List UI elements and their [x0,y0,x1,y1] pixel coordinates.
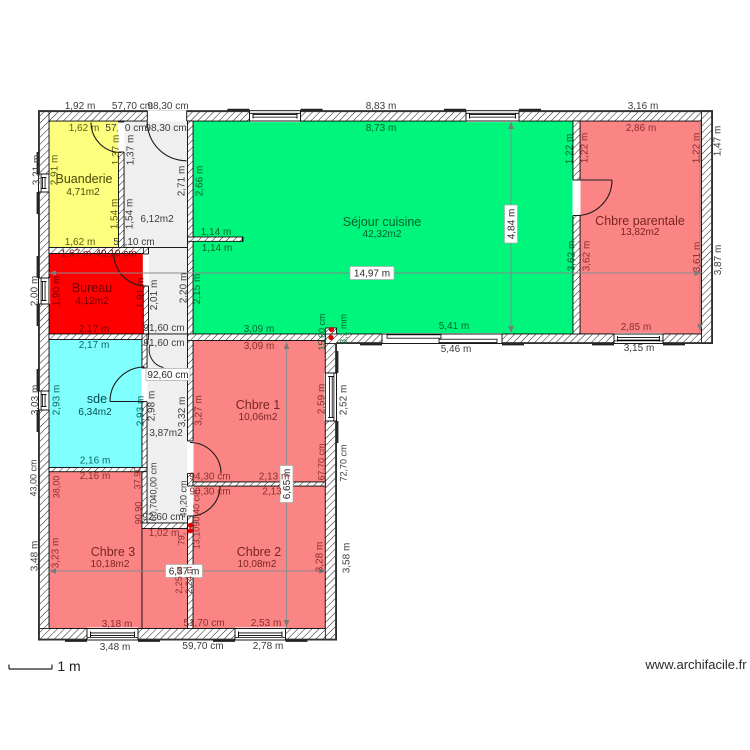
svg-text:49,10 cm: 49,10 cm [95,249,136,260]
svg-text:2,71 m: 2,71 m [177,166,188,197]
svg-text:40,00 cm: 40,00 cm [149,462,159,499]
svg-text:2,91 m: 2,91 m [50,155,61,186]
svg-text:3,23 m: 3,23 m [51,538,62,569]
svg-text:3,09 m: 3,09 m [244,324,275,335]
svg-text:4,84 m: 4,84 m [507,209,518,240]
svg-text:2,53 m: 2,53 m [251,618,282,629]
svg-text:2,20 m: 2,20 m [179,273,190,304]
svg-text:1,37 m: 1,37 m [111,135,122,166]
svg-text:2,13 m: 2,13 m [259,472,290,483]
svg-text:1,62 m: 1,62 m [69,123,100,134]
svg-text:2,17 m: 2,17 m [79,340,110,351]
svg-text:98,30 cm: 98,30 cm [147,101,188,112]
svg-text:3,16 m: 3,16 m [628,101,659,112]
svg-text:2,59 m: 2,59 m [317,384,328,415]
svg-text:2,86 m: 2,86 m [626,123,657,134]
svg-text:59,70 cm: 59,70 cm [182,641,223,652]
svg-text:1,91 m: 1,91 m [136,278,147,309]
svg-text:94,30 cm: 94,30 cm [189,472,230,483]
svg-text:2,52 m: 2,52 m [339,385,350,416]
svg-text:2,25 m: 2,25 m [174,566,184,594]
svg-text:2,66 m: 2,66 m [195,166,206,197]
svg-text:8,73 m: 8,73 m [366,123,397,134]
svg-text:2,16 m: 2,16 m [80,471,111,482]
svg-text:3,27 m: 3,27 m [194,395,205,426]
svg-text:3,28 m: 3,28 m [315,542,326,573]
svg-text:14,97 m: 14,97 m [354,269,390,280]
svg-text:98,30 cm: 98,30 cm [145,123,186,134]
svg-text:2,16 m: 2,16 m [80,456,111,467]
svg-text:13,10: 13,10 [192,527,202,550]
svg-text:6,12m2: 6,12m2 [140,214,174,225]
svg-text:Chbre 1: Chbre 1 [236,398,281,412]
svg-text:3,15 m: 3,15 m [624,343,655,354]
svg-text:Bureau: Bureau [72,281,112,295]
svg-text:3,87 m: 3,87 m [713,245,724,276]
svg-text:1,22 m: 1,22 m [565,134,576,165]
svg-text:8,83 m: 8,83 m [366,101,397,112]
svg-text:6,34m2: 6,34m2 [78,407,112,418]
svg-text:2,24 m: 2,24 m [184,566,194,594]
svg-text:3,32 m: 3,32 m [177,397,188,428]
svg-text:2,93 m: 2,93 m [52,385,63,416]
svg-text:2,13: 2,13 [262,487,282,498]
svg-text:5,46 m: 5,46 m [441,344,472,355]
svg-text:1,92 m: 1,92 m [65,101,96,112]
svg-text:10,06m2: 10,06m2 [239,412,278,423]
svg-text:3,58 m: 3,58 m [342,543,353,574]
svg-text:4,12m2: 4,12m2 [75,296,109,307]
svg-text:1,54 m: 1,54 m [110,199,121,230]
svg-text:1,62 m: 1,62 m [65,237,96,248]
svg-text:3,61 m: 3,61 m [692,242,703,273]
svg-text:1,47 m: 1,47 m [713,126,724,157]
svg-text:2,01 m: 2,01 m [149,280,160,311]
svg-text:www.archifacile.fr: www.archifacile.fr [644,657,747,672]
svg-text:3,21 m: 3,21 m [32,155,43,186]
svg-text:90,30 cm: 90,30 cm [189,487,230,498]
svg-text:2,78 m: 2,78 m [253,641,284,652]
svg-text:1,22 m: 1,22 m [580,133,591,164]
svg-text:1,37 m: 1,37 m [126,135,137,166]
svg-text:4,71m2: 4,71m2 [66,187,100,198]
svg-text:3,03 m: 3,03 m [30,385,41,416]
svg-text:1,22 m: 1,22 m [692,133,703,164]
svg-text:37,90: 37,90 [133,467,143,490]
svg-text:1,02 m: 1,02 m [149,528,180,539]
svg-text:15,60 cm: 15,60 cm [317,313,327,350]
svg-text:3,62 m: 3,62 m [582,241,593,272]
svg-text:3,48 m: 3,48 m [30,541,41,572]
svg-text:2,85 m: 2,85 m [621,322,652,333]
svg-text:38,00: 38,00 [52,476,62,499]
svg-text:92,60 cm: 92,60 cm [142,512,183,523]
svg-text:1,90 m: 1,90 m [52,276,63,307]
svg-text:sde: sde [87,392,107,406]
svg-text:2,98 m: 2,98 m [147,391,158,422]
svg-text:8,1 mm: 8,1 mm [339,314,349,344]
svg-text:3,18 m: 3,18 m [102,619,133,630]
svg-text:13,82m2: 13,82m2 [621,227,660,238]
svg-text:92,60 cm: 92,60 cm [147,370,188,381]
svg-text:91,60 cm: 91,60 cm [143,323,184,334]
svg-text:2,15 m: 2,15 m [192,274,203,305]
svg-text:Buanderie: Buanderie [56,172,113,186]
svg-text:Séjour cuisine: Séjour cuisine [343,215,422,229]
svg-text:3,48 m: 3,48 m [100,642,131,653]
svg-text:72,70 cm: 72,70 cm [339,444,349,481]
svg-text:Chbre 3: Chbre 3 [91,545,136,559]
svg-text:1,14 m: 1,14 m [202,243,233,254]
svg-text:51,70 cm: 51,70 cm [183,618,224,629]
svg-text:3,62 m: 3,62 m [567,241,578,272]
svg-text:3,09 m: 3,09 m [244,341,275,352]
svg-text:57,70 cm: 57,70 cm [105,123,146,134]
svg-text:1 m: 1 m [57,658,80,674]
svg-text:79,: 79, [177,533,187,546]
svg-text:5,41 m: 5,41 m [439,321,470,332]
svg-text:1,67 m: 1,67 m [61,249,92,260]
svg-text:2,00 m: 2,00 m [30,276,41,307]
svg-text:43,00 cm: 43,00 cm [29,459,39,496]
svg-text:67,70 cm: 67,70 cm [317,443,327,480]
svg-text:2,17 m: 2,17 m [79,324,110,335]
svg-text:1,54 m: 1,54 m [125,199,136,230]
svg-text:42,32m2: 42,32m2 [363,229,402,240]
svg-text:10,18m2: 10,18m2 [91,559,130,570]
svg-text:Chbre 2: Chbre 2 [237,545,282,559]
svg-text:10,08m2: 10,08m2 [238,559,277,570]
svg-text:1,14 m: 1,14 m [201,227,232,238]
svg-text:2,93 m: 2,93 m [136,396,147,427]
svg-text:Chbre parentale: Chbre parentale [595,214,685,228]
svg-text:3,87m2: 3,87m2 [149,428,183,439]
